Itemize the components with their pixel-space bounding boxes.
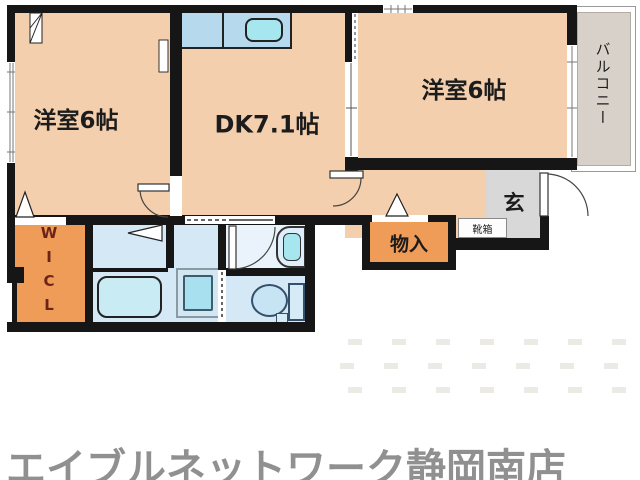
bathtub <box>97 276 162 318</box>
entrance-label: 玄 <box>504 187 525 217</box>
wall-entrance-bottom <box>452 238 549 250</box>
wall-bedroom2-bottom <box>345 158 577 170</box>
wicl-label: WICL <box>40 224 58 320</box>
wall-lavatory-stub <box>218 225 226 270</box>
bedroom1-door-gap <box>170 176 182 216</box>
toilet-partition-gap <box>218 270 226 322</box>
wall-toilet-right <box>305 217 315 332</box>
balcony-label: バルコニー <box>593 42 614 127</box>
storage-label: 物入 <box>390 230 428 257</box>
wall-top <box>7 5 577 13</box>
store-name: エイブルネットワーク静岡南店 <box>6 436 566 480</box>
bedroom1-label: 洋室6帖 <box>33 101 118 135</box>
wall-washroom-inner <box>166 225 174 268</box>
shoe-box-label: 靴箱 <box>459 221 506 236</box>
bedroom2-top-window-gap <box>383 5 413 13</box>
floorplan-canvas: 靴箱 <box>0 0 640 480</box>
wall-washroom-left <box>85 225 93 332</box>
dk-bedroom2-slidedoor-gap <box>345 62 358 157</box>
wall-entrance-right <box>540 216 549 250</box>
washbasin-bowl <box>283 233 301 261</box>
dk-bedroom2-slidedoor-pocket <box>352 13 358 62</box>
dk-label: DK7.1帖 <box>214 105 319 140</box>
shoe-box: 靴箱 <box>458 218 507 238</box>
wall-wicl-thin <box>12 283 17 322</box>
toilet-tank <box>288 283 305 321</box>
storage-opening <box>372 215 428 222</box>
dk-washroom-slidedoor-gap <box>185 216 275 224</box>
wall-bath-divider <box>93 268 168 272</box>
entrance-door-gap <box>540 172 549 216</box>
bedroom2-balcony-window-gap <box>567 45 577 158</box>
bedroom1-window-gap <box>7 62 15 163</box>
wall-lavatory-toilet <box>226 268 305 276</box>
bedroom2-label: 洋室6帖 <box>421 71 506 105</box>
kitchen-sink <box>245 18 283 42</box>
wall-wet-bottom <box>7 322 312 332</box>
kitchen-counter-divider <box>222 13 224 47</box>
washing-machine <box>183 275 213 311</box>
watermark-dashes <box>340 342 630 390</box>
wall-wicl-step <box>9 267 24 283</box>
